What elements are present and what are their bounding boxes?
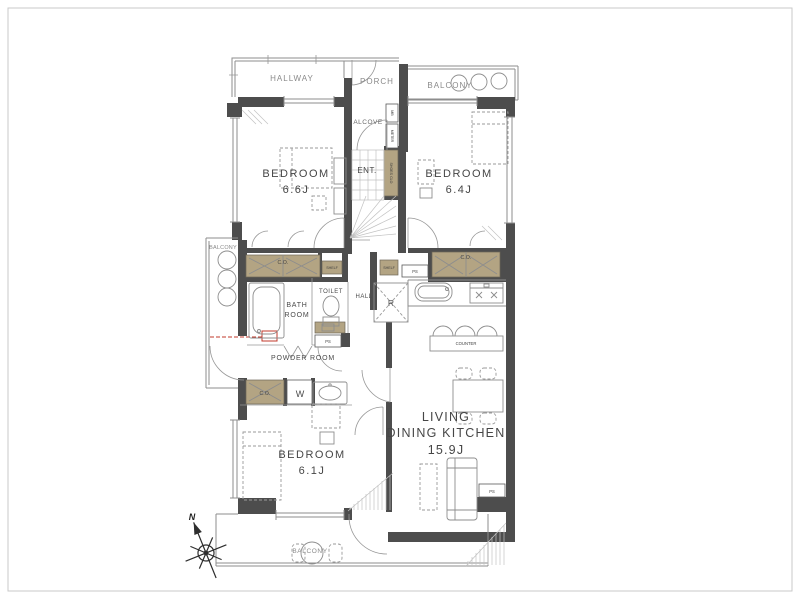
hall-label: HALL: [355, 294, 372, 300]
closet-left-label: C.O.: [277, 260, 288, 266]
exterior-hallway-porch: [229, 55, 399, 97]
bath-label-2: ROOM: [285, 312, 310, 319]
dining-chair: [456, 368, 472, 379]
bedroom-a-label: BEDROOM: [262, 168, 329, 180]
entrance-step-fan: [350, 196, 396, 238]
washbasin: [313, 382, 347, 404]
pipe-space-3-label: PS: [489, 489, 495, 494]
bed: [243, 432, 281, 500]
floor-plan-drawing: HALLWAY PORCH BALCONY ALCOVE MB METER EN…: [0, 0, 800, 599]
sofa: [447, 458, 477, 520]
entrance-tiles: [352, 150, 384, 200]
kitchen: [374, 280, 506, 351]
bedroom-b-door: [408, 218, 438, 248]
hatch-fan: [466, 523, 506, 566]
shelf-left-label: SHELF: [326, 266, 338, 270]
dining-table: [453, 380, 503, 412]
bedroom-a-size: 6.6J: [283, 184, 310, 196]
bedroom-b-label: BEDROOM: [425, 168, 492, 180]
red-marker-box: [262, 331, 277, 341]
hallway-label: HALLWAY: [270, 74, 314, 83]
ldk-door: [362, 368, 390, 402]
shelf-right-label: SHELF: [383, 266, 395, 270]
toilet-label: TOILET: [319, 289, 343, 295]
patio-chair: [329, 544, 342, 562]
porch-label: PORCH: [360, 77, 394, 86]
bath-label-1: BATH: [286, 302, 307, 309]
refrigerator-label: R: [388, 298, 394, 308]
balcony-door-arc: [349, 514, 387, 554]
meter-label: METER: [390, 130, 394, 143]
closet-bedroom-c-label: C.O.: [259, 391, 270, 397]
floor-plan-page: HALLWAY PORCH BALCONY ALCOVE MB METER EN…: [0, 0, 800, 599]
ldk-label-1: LIVING: [422, 410, 470, 424]
bedroom-c-size: 6.1J: [299, 465, 326, 477]
bed: [472, 112, 508, 164]
coffee-table: [420, 464, 437, 510]
desk: [312, 404, 340, 428]
stove: [470, 283, 503, 303]
counter-label: COUNTER: [456, 341, 477, 346]
bedroom-c-door: [355, 407, 383, 435]
pipe-space-1-label: PS: [412, 269, 418, 274]
powder-room-label: POWDER ROOM: [271, 355, 335, 362]
hatch-fan: [348, 473, 393, 511]
dining-chair: [480, 413, 496, 424]
balcony-left-label: BALCONY: [209, 245, 237, 251]
bedroom-b-size: 6.4J: [446, 184, 473, 196]
compass-north-label: N: [189, 512, 196, 522]
bedroom-c-label: BEDROOM: [278, 449, 345, 461]
closet-right-label: C.O.: [460, 255, 471, 261]
ldk-size: 15.9J: [428, 443, 465, 457]
ldk-label-2: DINING KITCHEN: [387, 426, 506, 440]
dining-chair: [480, 368, 496, 379]
washer-label: W: [296, 389, 305, 399]
alcove-label: ALCOVE: [353, 119, 383, 126]
bedroom-a-door: [314, 218, 344, 248]
balcony-top-label: BALCONY: [427, 81, 472, 90]
pipe-space-2-label: PS: [325, 339, 331, 344]
balcony-bottom-label: BALCONY: [292, 548, 327, 555]
compass: [173, 514, 236, 586]
meter-box-label: MB: [390, 110, 394, 116]
north-arrow: [190, 521, 202, 535]
entrance-label: ENT.: [357, 166, 376, 175]
toilet-bowl: [323, 296, 339, 316]
shoes-closet-label: SHOES CLO: [389, 163, 393, 184]
counter-chairs: [433, 326, 497, 336]
